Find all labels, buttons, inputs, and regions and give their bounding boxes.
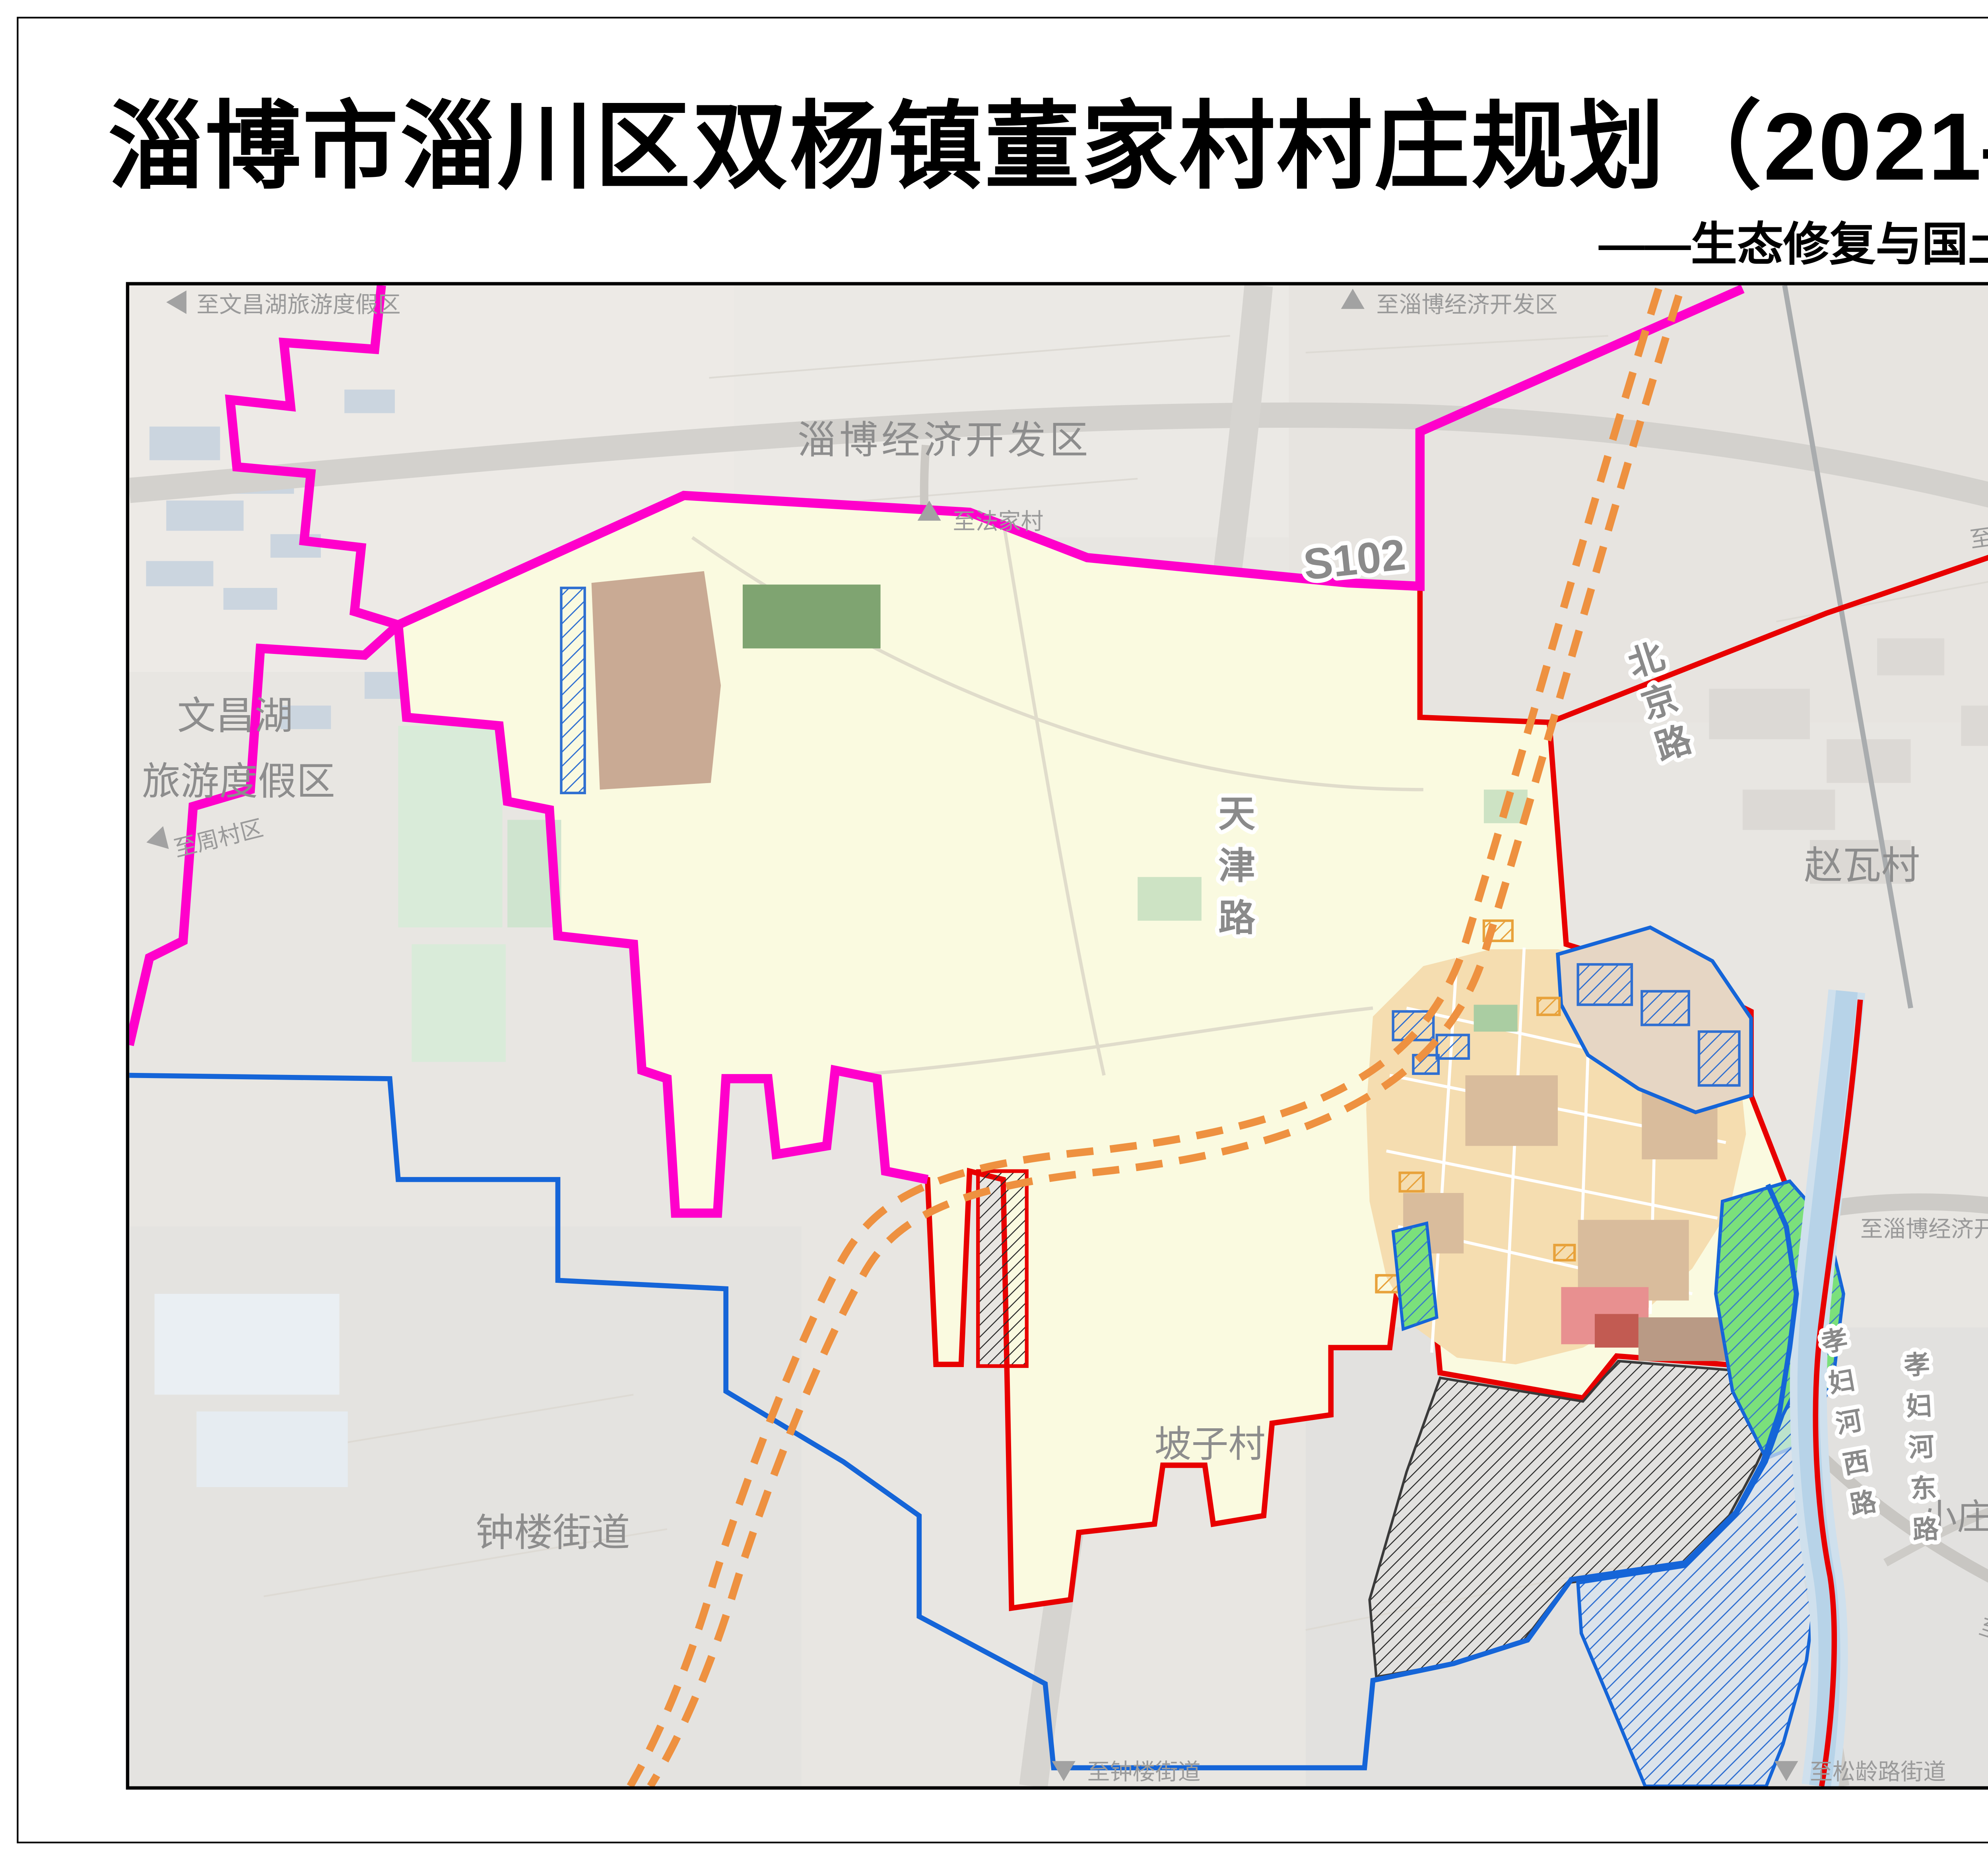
label-wenchanghu-1: 文昌湖 <box>177 694 293 737</box>
page-title: 淄博市淄川区双杨镇董家村村庄规划（2021—2035年） <box>0 70 1988 208</box>
label-zhonglou: 钟楼街道 <box>476 1511 630 1554</box>
label-zibo-edz: 淄博经济开发区 <box>797 419 1091 462</box>
map-canvas: 淄博经济开发区 文昌湖 旅游度假区 赵瓦村 钟楼街道 坡子村 小庄村 S102 … <box>126 282 1988 1789</box>
label-to-zhonglou: 至钟楼街道 <box>1087 1759 1200 1785</box>
label-pozi: 坡子村 <box>1155 1424 1266 1465</box>
brown-area <box>592 571 721 790</box>
label-to-zibo-edz-top: 至淄博经济开发区 <box>1376 292 1557 318</box>
label-to-songling: 至松龄路街道 <box>1810 1759 1946 1785</box>
urban-boundary-strip <box>978 1171 1027 1366</box>
label-tianjin-road: 天津路 <box>1218 793 1256 939</box>
page-subtitle: ——生态修复与国土综合整治规划图 <box>1598 206 1988 273</box>
label-to-fajia: 至法家村 <box>953 509 1043 534</box>
label-to-zibo-edz-east: 至淄博经济开发区 <box>1860 1216 1988 1242</box>
map-svg: 淄博经济开发区 文昌湖 旅游度假区 赵瓦村 钟楼街道 坡子村 小庄村 S102 … <box>129 285 1988 1786</box>
label-zhaowa: 赵瓦村 <box>1804 844 1920 887</box>
label-wenchanghu-2: 旅游度假区 <box>142 760 335 803</box>
label-to-wenchanghu: 至文昌湖旅游度假区 <box>196 292 400 318</box>
page: 淄博市淄川区双杨镇董家村村庄规划（2021—2035年） ——生态修复与国土综合… <box>0 0 1988 1860</box>
construction-strip-nw <box>561 588 584 793</box>
